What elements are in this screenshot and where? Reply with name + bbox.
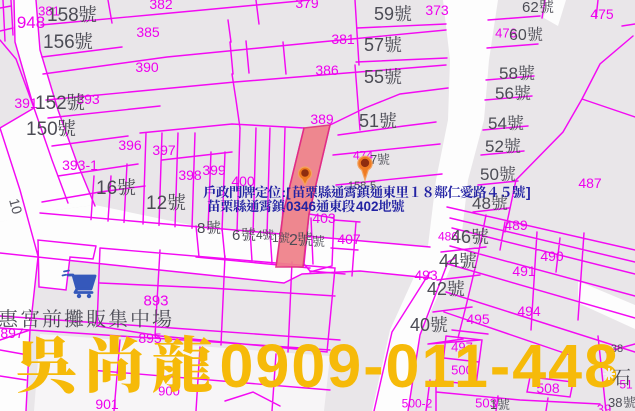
svg-text:487: 487	[578, 175, 602, 191]
svg-text:382: 382	[149, 0, 173, 12]
svg-text:42: 42	[427, 279, 447, 299]
svg-text:489: 489	[504, 217, 528, 233]
svg-text:393: 393	[76, 91, 100, 107]
svg-text:396: 396	[118, 137, 142, 153]
svg-text:399: 399	[202, 162, 226, 178]
svg-text:58: 58	[499, 64, 518, 83]
svg-text:373: 373	[425, 2, 449, 18]
svg-text:398: 398	[178, 167, 202, 183]
svg-text:]: ]	[526, 184, 531, 200]
svg-text:62: 62	[522, 0, 539, 16]
svg-text:60: 60	[509, 27, 527, 44]
svg-text:407: 407	[337, 231, 361, 247]
svg-text:1: 1	[272, 231, 279, 245]
svg-text:901: 901	[95, 396, 119, 411]
svg-text:893: 893	[143, 292, 168, 309]
svg-text:494: 494	[517, 303, 541, 319]
svg-text:385: 385	[136, 24, 160, 40]
svg-text:397: 397	[152, 142, 176, 158]
svg-text:152: 152	[35, 93, 67, 114]
svg-text:57: 57	[364, 35, 384, 55]
svg-text:8: 8	[197, 220, 205, 237]
svg-text:150: 150	[26, 119, 58, 140]
svg-text:54: 54	[488, 114, 507, 133]
svg-text:156: 156	[43, 32, 75, 53]
svg-text:0346: 0346	[286, 199, 317, 214]
svg-text:6: 6	[232, 227, 240, 244]
svg-text:16: 16	[96, 178, 117, 199]
svg-text:50: 50	[480, 165, 499, 184]
svg-text:2: 2	[289, 232, 298, 249]
svg-text:390: 390	[135, 59, 159, 75]
svg-text:4: 4	[256, 228, 263, 242]
svg-text:56: 56	[495, 84, 514, 103]
svg-text:59: 59	[374, 4, 394, 24]
svg-text:0909-011-448: 0909-011-448	[220, 332, 621, 400]
svg-text:52: 52	[485, 137, 504, 156]
svg-text:12: 12	[146, 193, 167, 214]
svg-text:55: 55	[364, 67, 384, 87]
svg-text:386: 386	[315, 62, 339, 78]
svg-text:402: 402	[356, 199, 379, 214]
svg-text:44: 44	[439, 251, 459, 271]
svg-text:475: 475	[590, 6, 614, 22]
svg-text:158: 158	[47, 5, 79, 26]
svg-text:51: 51	[359, 111, 379, 131]
svg-text:381: 381	[331, 31, 355, 47]
svg-text:46: 46	[451, 227, 471, 247]
svg-text:[: [	[286, 185, 291, 200]
svg-text:51: 51	[619, 377, 633, 391]
svg-text:389: 389	[310, 111, 334, 127]
svg-text:495: 495	[466, 311, 490, 327]
svg-text:379: 379	[295, 0, 319, 11]
svg-text:393-1: 393-1	[62, 157, 98, 173]
svg-text:491: 491	[512, 263, 536, 279]
svg-text:490: 490	[540, 248, 564, 264]
svg-text:897: 897	[0, 325, 24, 341]
